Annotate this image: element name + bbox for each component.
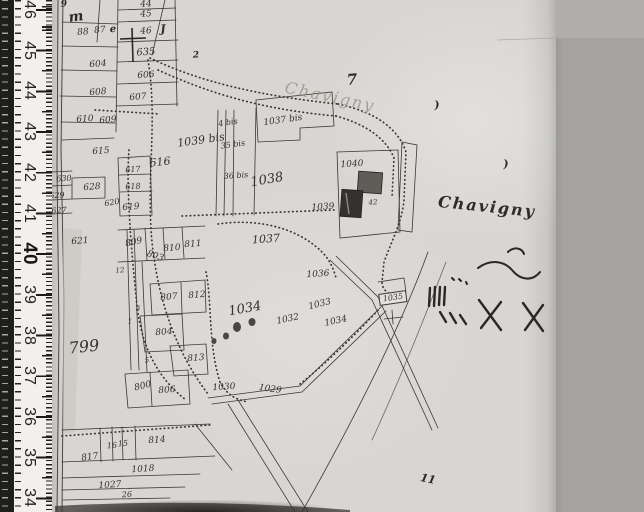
parcel-label: 12 (115, 267, 124, 275)
ruler-number: 37 (20, 366, 38, 386)
parcel-label: 630 (56, 174, 72, 183)
ruler-number: 44 (20, 81, 38, 101)
parcel-label: 16 (107, 442, 118, 451)
ruler-number: 35 (20, 448, 38, 468)
parcel-label: 628 (83, 183, 101, 193)
parcel-label: 812 (188, 291, 206, 301)
parcel-label: 1037 (252, 233, 281, 246)
ruler-number: 42 (20, 163, 38, 183)
parcel-label: 1030 (212, 383, 235, 394)
parcel-label: 5 (145, 357, 150, 364)
ruler-number: 45 (20, 41, 38, 61)
parcel-label: 609 (99, 116, 117, 126)
parcel-label: 803 (145, 250, 164, 264)
parcel-label: 814 (148, 436, 166, 446)
parcel-label: 810 (163, 244, 181, 254)
ink-mark: ) (503, 158, 509, 169)
ink-mark: J (160, 23, 166, 34)
parcel-label: 1037 bis (263, 114, 303, 128)
parcel-label: 1038 (250, 171, 285, 190)
parcel-label: 35 bis (220, 139, 245, 150)
parcel-label: 606 (137, 71, 155, 81)
parcel-label: 46 (140, 27, 152, 37)
ruler-number: 46 (20, 0, 38, 20)
paper-bottom-shadow (55, 500, 355, 512)
parcel-label: 36 bis (223, 171, 248, 181)
parcel-label: 807 (160, 293, 178, 303)
ink-mark: m (68, 9, 85, 25)
parcel-label: 604 (89, 60, 107, 70)
ink-mark: 11 (419, 472, 436, 486)
parcel-label: 3 (136, 305, 141, 312)
parcel-label: 1029 (258, 384, 282, 396)
ink-mark: ) (434, 99, 440, 110)
parcel-label: 635 (136, 47, 156, 58)
parcel-label: 804 (155, 328, 173, 338)
parcel-label: 1018 (131, 465, 154, 476)
parcel-label: 621 (71, 237, 89, 247)
parcel-label: 1039 (311, 203, 334, 214)
place-name: Chavigny (283, 80, 376, 115)
parcel-label: 45 (140, 10, 152, 20)
parcel-label: 811 (184, 240, 202, 250)
scanned-map-photo: 4445468887635604606608607610609615616103… (0, 0, 644, 512)
parcel-label: 617 (125, 165, 141, 174)
parcel-label: 41 (347, 198, 356, 206)
parcel-label: 627 (51, 206, 67, 215)
parcel-label: 42 (368, 199, 377, 207)
ink-mark: 9 (61, 0, 68, 9)
parcel-label: 1032 (276, 313, 300, 327)
parcel-label: 607 (129, 93, 147, 103)
parcel-label: 1034 (228, 300, 263, 319)
parcel-label: 813 (187, 354, 205, 364)
ink-mark: 7 (346, 72, 357, 88)
parcel-label: 817 (81, 452, 99, 463)
parcel-label: 88 (77, 28, 89, 38)
parcel-label: 1027 (98, 481, 121, 492)
parcel-label: 1039 bis (177, 131, 226, 149)
parcel-label: 806 (158, 386, 176, 396)
parcel-label: 799 (68, 337, 100, 356)
ruler-number: 40 (18, 243, 40, 266)
parcel-label: 15 (118, 440, 129, 449)
parcel-label: 1034 (324, 315, 348, 329)
ruler-numbers: 46454443424140393837363534 (0, 0, 52, 512)
parcel-label: 618 (125, 182, 141, 191)
boxed-parcel-label: 1035 (378, 290, 408, 306)
ruler-number: 39 (20, 285, 38, 305)
measuring-ruler: 46454443424140393837363534 (0, 0, 52, 512)
parcel-label: 1040 (340, 160, 363, 171)
parcel-label: 1 (128, 318, 133, 325)
ink-mark: e (109, 25, 116, 35)
ruler-number: 34 (20, 488, 38, 508)
parcel-label: 608 (89, 88, 107, 98)
parcel-label: 26 (122, 491, 133, 500)
parcel-label: 615 (92, 147, 110, 157)
ruler-number: 38 (20, 326, 38, 346)
map-labels-layer: 4445468887635604606608607610609615616103… (0, 0, 644, 512)
parcel-label: 616 (149, 155, 171, 168)
parcel-label: 1036 (306, 270, 329, 281)
ruler-number: 36 (20, 407, 38, 427)
ruler-number: 43 (20, 122, 38, 142)
parcel-label: 610 (76, 115, 94, 125)
place-name: Chavigny (437, 194, 536, 220)
parcel-label: 800 (134, 381, 153, 394)
parcel-label: 619 (122, 203, 140, 213)
parcel-label: 4 bis (218, 118, 238, 129)
parcel-label: 620 (104, 198, 120, 209)
parcel-label: 1033 (308, 298, 332, 312)
ruler-number: 41 (20, 204, 38, 224)
ink-mark: 2 (193, 51, 200, 60)
parcel-label: 87 (94, 26, 106, 36)
parcel-label: 809 (125, 237, 144, 249)
